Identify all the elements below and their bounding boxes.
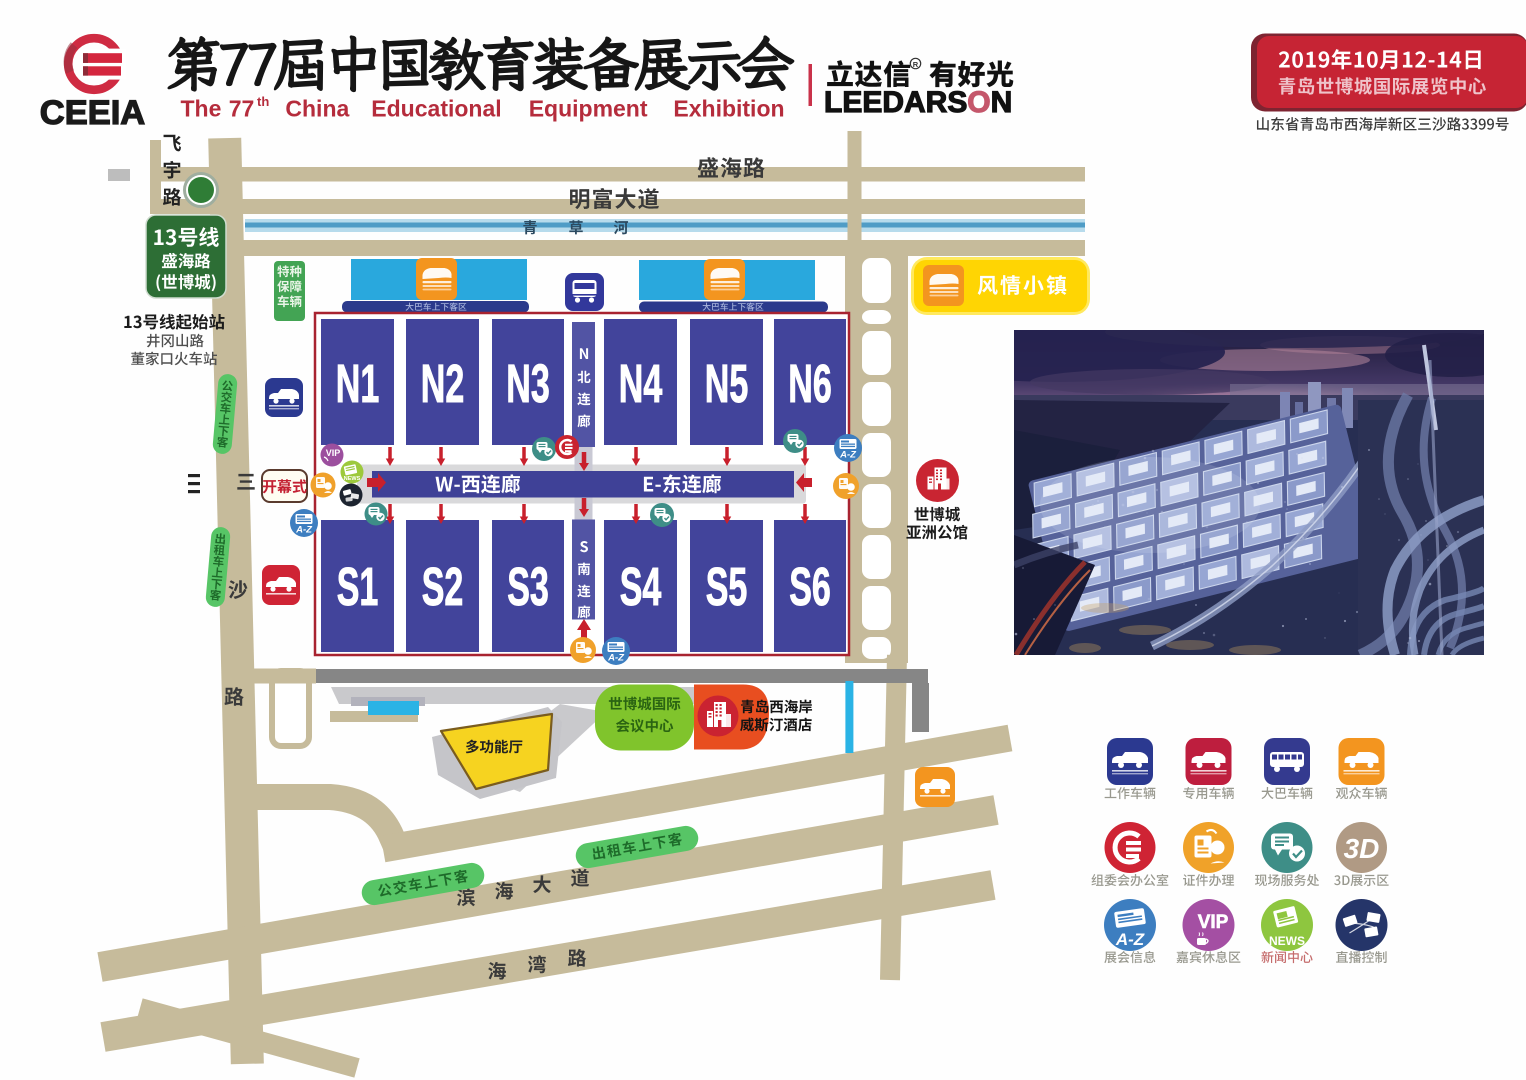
svg-text:VIP: VIP bbox=[326, 448, 341, 458]
svg-text:th: th bbox=[257, 94, 269, 109]
svg-text:S1: S1 bbox=[337, 556, 379, 617]
svg-text:R: R bbox=[913, 60, 919, 69]
svg-text:CEEIA: CEEIA bbox=[40, 94, 145, 132]
svg-text:S3: S3 bbox=[507, 556, 549, 617]
svg-text:3D: 3D bbox=[1344, 833, 1380, 864]
svg-text:VIP: VIP bbox=[1198, 912, 1229, 933]
svg-text:A-Z: A-Z bbox=[295, 525, 313, 536]
svg-text:O: O bbox=[967, 86, 990, 119]
svg-text:N6: N6 bbox=[788, 353, 831, 414]
svg-text:N5: N5 bbox=[705, 353, 748, 414]
svg-text:A-Z: A-Z bbox=[607, 653, 625, 664]
svg-text:77: 77 bbox=[229, 96, 255, 122]
svg-text:N1: N1 bbox=[336, 353, 379, 414]
svg-text:LEEDARS: LEEDARS bbox=[824, 86, 967, 119]
svg-text:NEWS: NEWS bbox=[1269, 934, 1305, 948]
svg-text:S2: S2 bbox=[422, 556, 464, 617]
svg-text:S6: S6 bbox=[789, 556, 831, 617]
svg-text:A-Z: A-Z bbox=[1115, 930, 1145, 949]
svg-text:The: The bbox=[181, 96, 222, 122]
svg-text:S4: S4 bbox=[620, 556, 662, 617]
svg-text:Exhibition: Exhibition bbox=[673, 96, 784, 122]
svg-text:NEWS: NEWS bbox=[344, 476, 361, 482]
svg-text:N3: N3 bbox=[506, 353, 549, 414]
svg-text:N4: N4 bbox=[619, 353, 662, 414]
svg-text:China: China bbox=[285, 96, 349, 122]
svg-text:Equipment: Equipment bbox=[529, 96, 648, 122]
svg-text:Educational: Educational bbox=[371, 96, 501, 122]
svg-text:N: N bbox=[991, 86, 1013, 119]
svg-text:A-Z: A-Z bbox=[839, 450, 857, 461]
svg-text:S5: S5 bbox=[706, 556, 748, 617]
svg-text:N2: N2 bbox=[421, 353, 464, 414]
